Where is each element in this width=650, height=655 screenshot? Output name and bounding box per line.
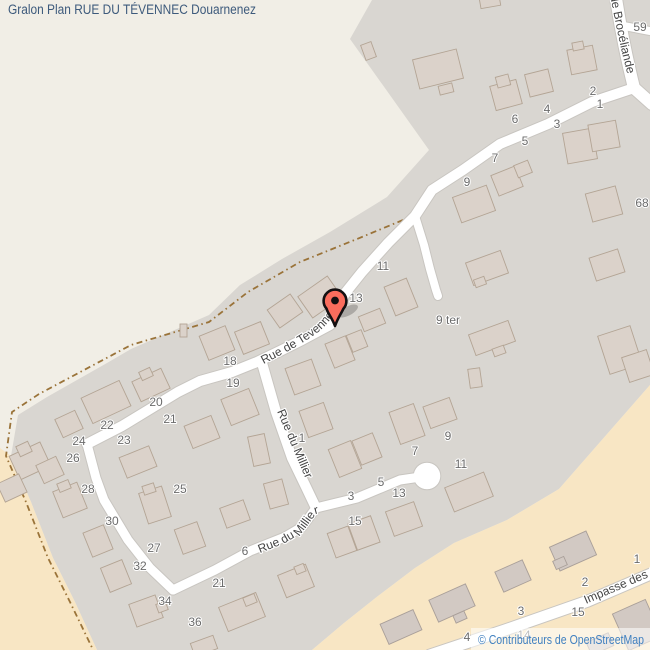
svg-text:3: 3 — [554, 117, 561, 131]
svg-text:15: 15 — [348, 514, 362, 528]
svg-text:28: 28 — [81, 482, 95, 496]
svg-text:27: 27 — [147, 541, 161, 555]
svg-text:1: 1 — [634, 552, 641, 566]
svg-text:Gralon Plan RUE DU TÉVENNEC Do: Gralon Plan RUE DU TÉVENNEC Douarnenez — [8, 2, 256, 17]
svg-text:7: 7 — [412, 444, 419, 458]
svg-text:5: 5 — [378, 475, 385, 489]
svg-text:21: 21 — [163, 412, 177, 426]
svg-text:20: 20 — [149, 395, 163, 409]
svg-text:9 ter: 9 ter — [436, 313, 460, 327]
svg-text:25: 25 — [173, 482, 187, 496]
svg-text:36: 36 — [188, 615, 202, 629]
svg-text:2: 2 — [590, 84, 597, 98]
svg-text:9: 9 — [464, 175, 471, 189]
svg-text:15: 15 — [571, 605, 585, 619]
svg-text:9: 9 — [445, 429, 452, 443]
svg-text:23: 23 — [117, 433, 131, 447]
svg-text:19: 19 — [226, 376, 240, 390]
svg-text:30: 30 — [105, 514, 119, 528]
svg-text:11: 11 — [377, 259, 390, 273]
svg-text:4: 4 — [464, 630, 471, 644]
svg-text:5: 5 — [522, 134, 529, 148]
svg-text:21: 21 — [212, 576, 226, 590]
svg-text:6: 6 — [512, 112, 519, 126]
svg-text:18: 18 — [223, 354, 237, 368]
svg-text:6: 6 — [242, 544, 249, 558]
svg-text:24: 24 — [72, 434, 86, 448]
svg-text:© Contributeurs de OpenStreetM: © Contributeurs de OpenStreetMap — [478, 632, 644, 647]
svg-text:59: 59 — [633, 20, 647, 34]
svg-text:26: 26 — [66, 451, 80, 465]
svg-text:3: 3 — [518, 604, 525, 618]
svg-text:13: 13 — [392, 486, 406, 500]
svg-text:1: 1 — [597, 97, 604, 111]
svg-text:4: 4 — [544, 102, 551, 116]
svg-text:2: 2 — [582, 575, 589, 589]
svg-text:68: 68 — [635, 196, 649, 210]
svg-text:34: 34 — [158, 594, 172, 608]
svg-text:22: 22 — [100, 418, 114, 432]
svg-text:11: 11 — [455, 457, 468, 471]
svg-text:3: 3 — [348, 489, 355, 503]
svg-text:13: 13 — [349, 291, 363, 305]
svg-text:7: 7 — [492, 151, 499, 165]
svg-text:32: 32 — [133, 559, 147, 573]
